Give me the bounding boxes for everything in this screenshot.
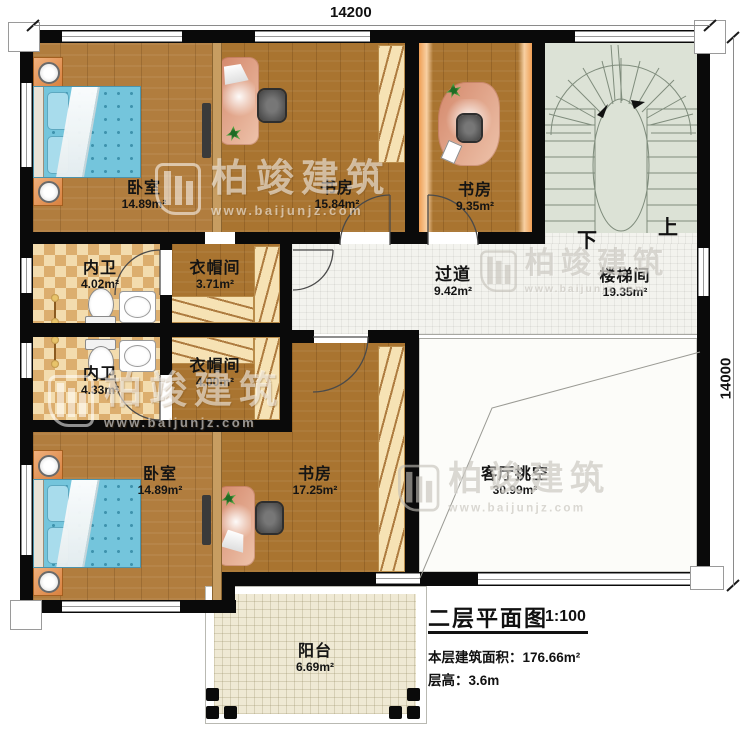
monitor-icon	[458, 115, 481, 141]
room-label-closet-lower: 衣帽间 4.00m²	[168, 358, 262, 390]
room-label-study-large: 书房 17.25m²	[255, 466, 375, 498]
floor-area-value: 176.66m²	[523, 650, 581, 665]
towel-bar-icon	[54, 298, 56, 322]
wall-segment	[280, 232, 292, 432]
wall-segment	[478, 232, 532, 244]
stair-up-label: 上	[658, 211, 678, 240]
wardrobe-hatch	[378, 346, 405, 572]
balcony-post	[407, 706, 420, 719]
tv-unit	[202, 103, 211, 158]
wall-segment	[20, 232, 205, 244]
exterior-marker	[10, 600, 42, 630]
floor-plan-canvas: 卧室 14.89m² 书房 15.84m² 书房 9.35m² 内卫 4.02m…	[0, 0, 750, 737]
towel-bar-icon	[54, 340, 56, 364]
wall-partition	[212, 43, 222, 232]
room-label-bath-lower: 内卫 4.33m²	[55, 366, 145, 398]
sink-icon	[119, 291, 156, 323]
dimension-line-top	[33, 25, 710, 26]
wall-segment	[160, 295, 172, 323]
floor-height-label: 层高：	[428, 673, 469, 688]
window	[21, 343, 32, 378]
wall-segment	[405, 330, 419, 572]
wall-segment	[222, 572, 235, 612]
tv-unit	[202, 495, 211, 545]
window	[21, 465, 32, 555]
plan-scale: 1:100	[545, 608, 586, 626]
balcony-door	[376, 573, 420, 584]
dimension-line-right	[733, 37, 734, 586]
room-label-stairwell: 楼梯间 19.35m²	[577, 268, 673, 300]
nightstand	[33, 57, 63, 87]
wall-segment	[160, 244, 172, 250]
plan-title: 二层平面图	[428, 601, 548, 633]
void-edge-line	[419, 338, 697, 339]
wall-segment	[20, 323, 280, 337]
double-bed	[33, 86, 141, 178]
window	[21, 83, 32, 167]
wall-partition	[212, 432, 222, 600]
room-label-bedroom-bottom: 卧室 14.89m²	[100, 466, 220, 498]
sink-basin	[124, 345, 151, 367]
wardrobe-hatch	[378, 45, 405, 163]
floor-area-info: 本层建筑面积：176.66m²	[428, 646, 580, 666]
room-label-living-void: 客厅挑空 30.99m²	[453, 466, 577, 498]
nightstand	[33, 450, 63, 480]
lamp-icon	[38, 181, 60, 203]
lamp-icon	[38, 455, 60, 477]
room-label-balcony: 阳台 6.69m²	[255, 643, 375, 675]
lamp-icon	[38, 62, 60, 84]
stair-down-label: 下	[577, 224, 597, 253]
balcony-post	[206, 688, 219, 701]
window	[62, 601, 180, 612]
room-label-closet-upper: 衣帽间 3.71m²	[168, 260, 262, 292]
monitor-icon	[257, 503, 282, 533]
exterior-marker	[690, 566, 724, 590]
floor-height-info: 层高：3.6m	[428, 669, 499, 689]
balcony-post	[206, 706, 219, 719]
floor-height-value: 3.6m	[469, 673, 500, 688]
exterior-marker	[8, 22, 40, 52]
lamp-icon	[38, 571, 60, 593]
office-chair	[259, 90, 285, 121]
window	[21, 258, 32, 293]
desk	[217, 486, 255, 566]
bed-headboard	[34, 87, 44, 177]
room-label-study-small: 书房 9.35m²	[415, 182, 535, 214]
room-floor-living-void	[419, 338, 697, 572]
stair-area	[545, 43, 697, 233]
window	[255, 31, 370, 42]
title-underline	[428, 631, 588, 634]
wall-segment	[20, 420, 280, 432]
nightstand	[33, 566, 63, 596]
room-label-study-top: 书房 15.84m²	[272, 180, 402, 212]
bed-headboard	[34, 480, 44, 567]
room-label-bath-upper: 内卫 4.02m²	[55, 260, 145, 292]
room-label-bedroom-top: 卧室 14.89m²	[84, 180, 204, 212]
floor-area-label: 本层建筑面积：	[428, 650, 523, 665]
dimension-right-value: 14000	[717, 358, 734, 400]
void-edge-line	[419, 334, 697, 335]
window	[478, 573, 696, 585]
nightstand	[33, 176, 63, 206]
balcony-post	[389, 706, 402, 719]
balcony-post	[407, 688, 420, 701]
staircase-drawing	[545, 43, 697, 233]
window	[62, 31, 182, 42]
window	[575, 31, 695, 42]
dimension-top-value: 14200	[330, 4, 372, 21]
sink-basin	[124, 296, 151, 318]
window	[698, 248, 709, 296]
balcony-post	[224, 706, 237, 719]
wall-segment	[697, 30, 710, 586]
room-label-hallway: 过道 9.42m²	[405, 265, 501, 298]
wardrobe-hatch	[164, 296, 254, 323]
wall-segment	[292, 330, 314, 343]
